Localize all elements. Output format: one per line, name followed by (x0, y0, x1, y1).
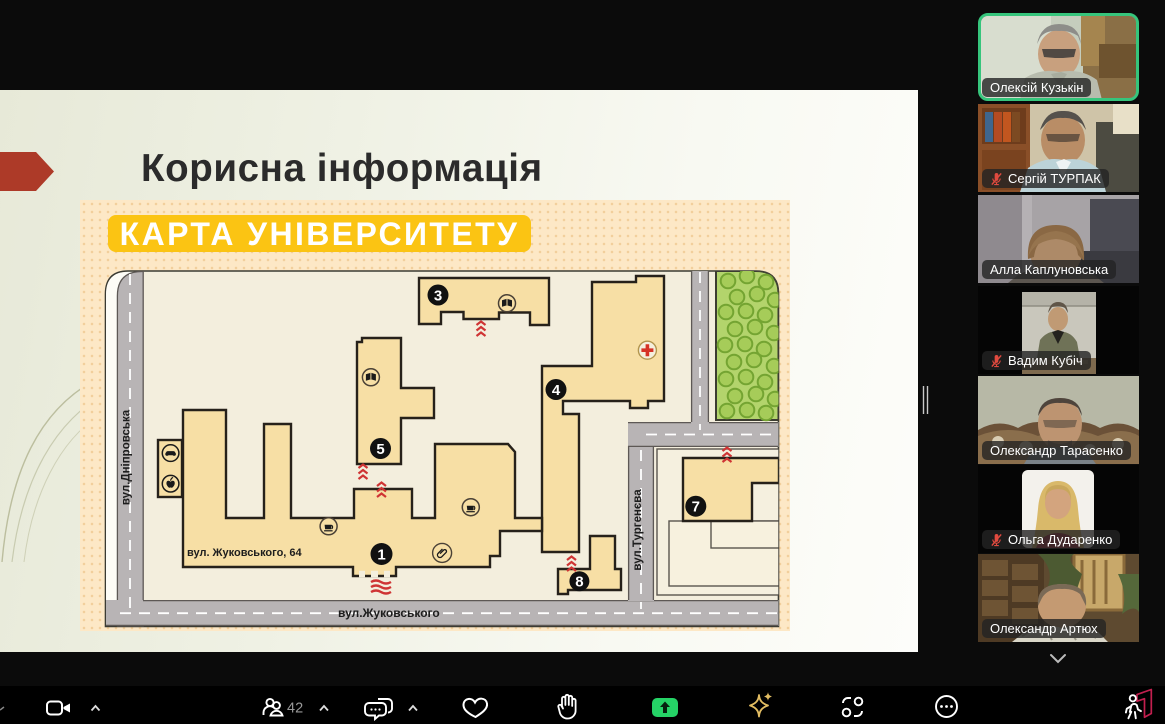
svg-text:вул.Дніпровська: вул.Дніпровська (121, 409, 133, 505)
svg-text:42: 42 (287, 701, 303, 717)
svg-text:1: 1 (377, 547, 385, 564)
svg-text:5: 5 (376, 441, 384, 458)
svg-text:4: 4 (552, 382, 561, 399)
svg-text:вул. Жуковського, 64: вул. Жуковського, 64 (187, 547, 303, 559)
svg-text:3: 3 (434, 288, 442, 305)
svg-text:8: 8 (575, 574, 583, 591)
svg-text:вул.Тургенєва: вул.Тургенєва (632, 489, 644, 571)
svg-text:7: 7 (692, 499, 700, 516)
svg-text:вул.Жуковського: вул.Жуковського (338, 606, 440, 620)
